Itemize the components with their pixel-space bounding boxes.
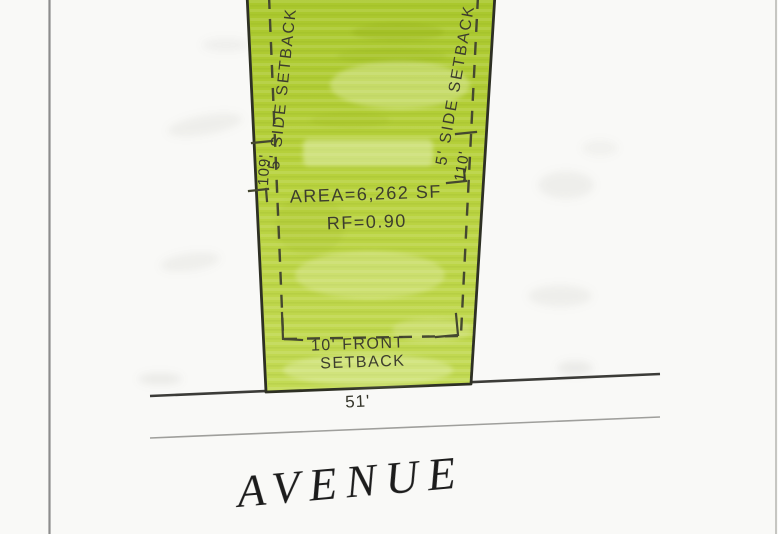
plat-drawing: 5' SIDE SETBACK 5' SIDE SETBACK 109' 110… (0, 0, 778, 534)
rf-label: RF=0.90 (326, 211, 407, 234)
front-setback-label-line2: SETBACK (320, 353, 406, 373)
front-setback-label-line1: 10' FRONT (311, 334, 405, 354)
scanned-plat-page: 5' SIDE SETBACK 5' SIDE SETBACK 109' 110… (0, 0, 778, 534)
left-depth-dimension: 109' (255, 153, 274, 186)
frontage-dimension: 51' (345, 391, 371, 411)
